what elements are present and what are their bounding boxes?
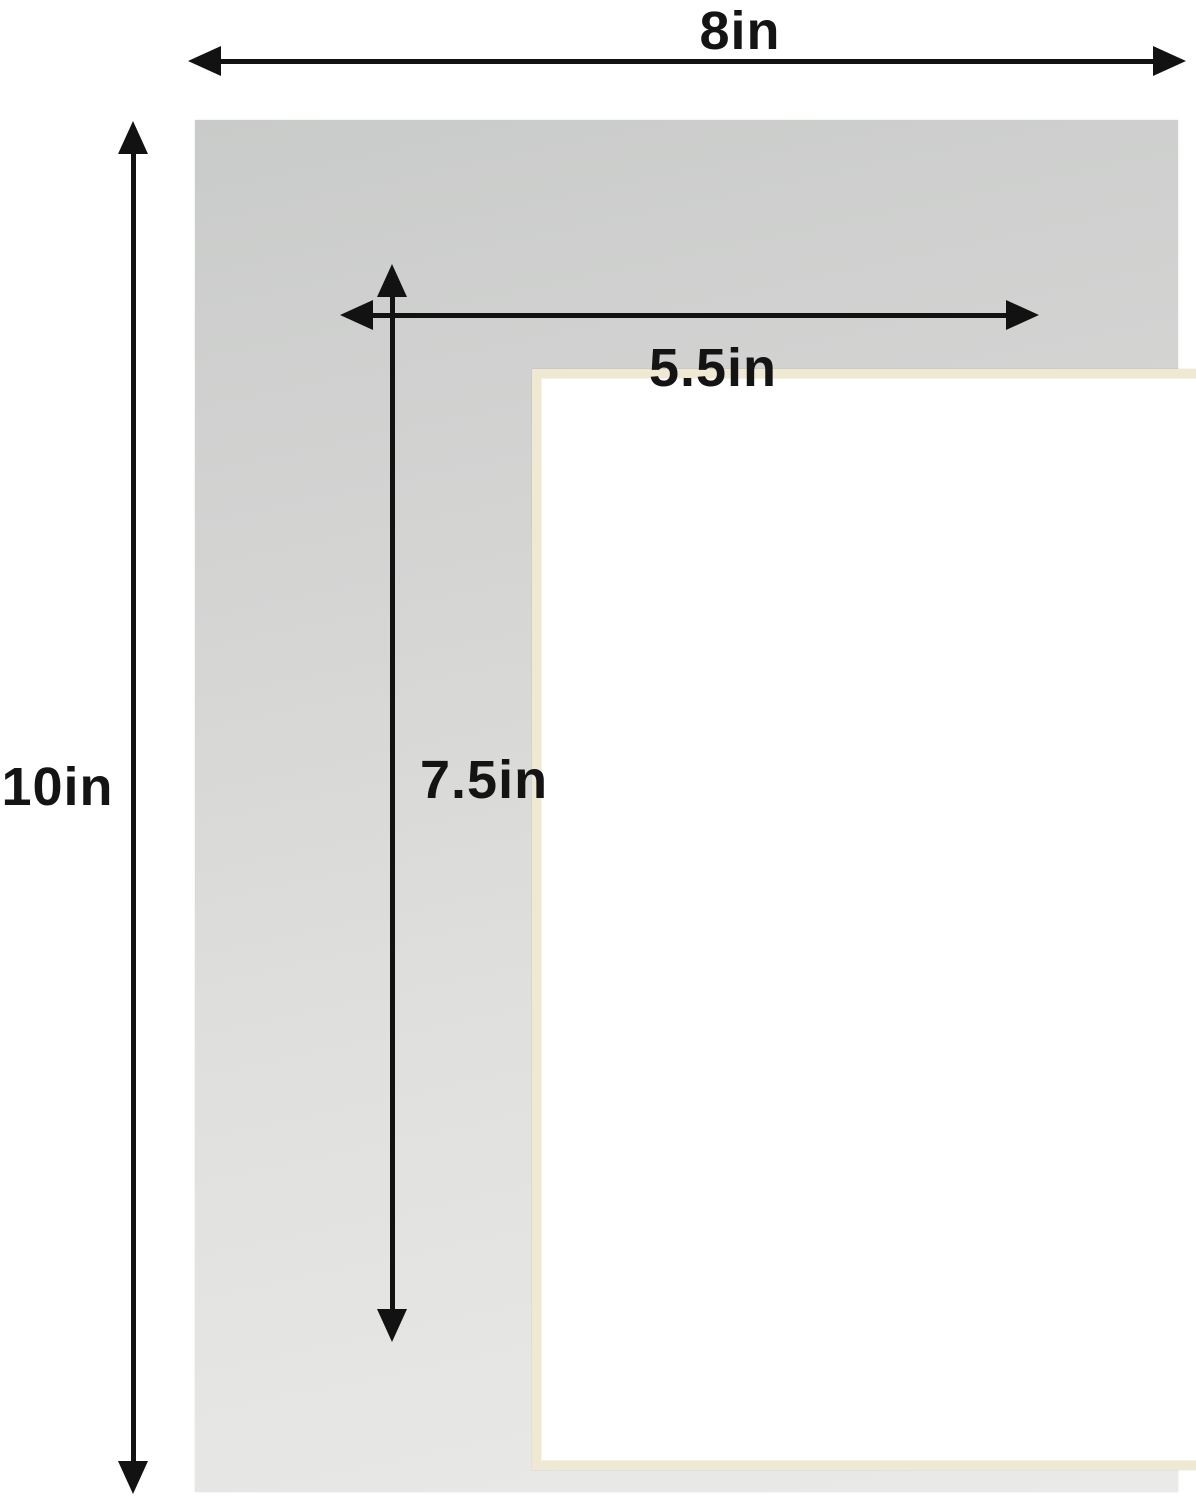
outer-width-arrow <box>188 46 1186 76</box>
arrow-shaft <box>214 59 1160 64</box>
mat-opening-window <box>532 369 1196 1470</box>
arrow-shaft <box>366 313 1013 318</box>
outer-height-arrow <box>118 121 148 1494</box>
opening-width-arrow <box>340 300 1039 330</box>
opening-height-label: 7.5in <box>420 753 548 807</box>
arrowhead-down-icon <box>118 1461 148 1494</box>
product-dimension-diagram: 8in 10in 5.5in 7.5in <box>0 0 1196 1500</box>
opening-height-arrow <box>377 264 407 1342</box>
opening-width-label: 5.5in <box>593 341 833 395</box>
arrowhead-down-icon <box>377 1309 407 1342</box>
arrowhead-right-icon <box>1006 300 1039 330</box>
arrow-shaft <box>131 147 136 1468</box>
arrow-shaft <box>390 290 395 1316</box>
outer-height-label: 10in <box>0 760 125 814</box>
arrowhead-right-icon <box>1153 46 1186 76</box>
